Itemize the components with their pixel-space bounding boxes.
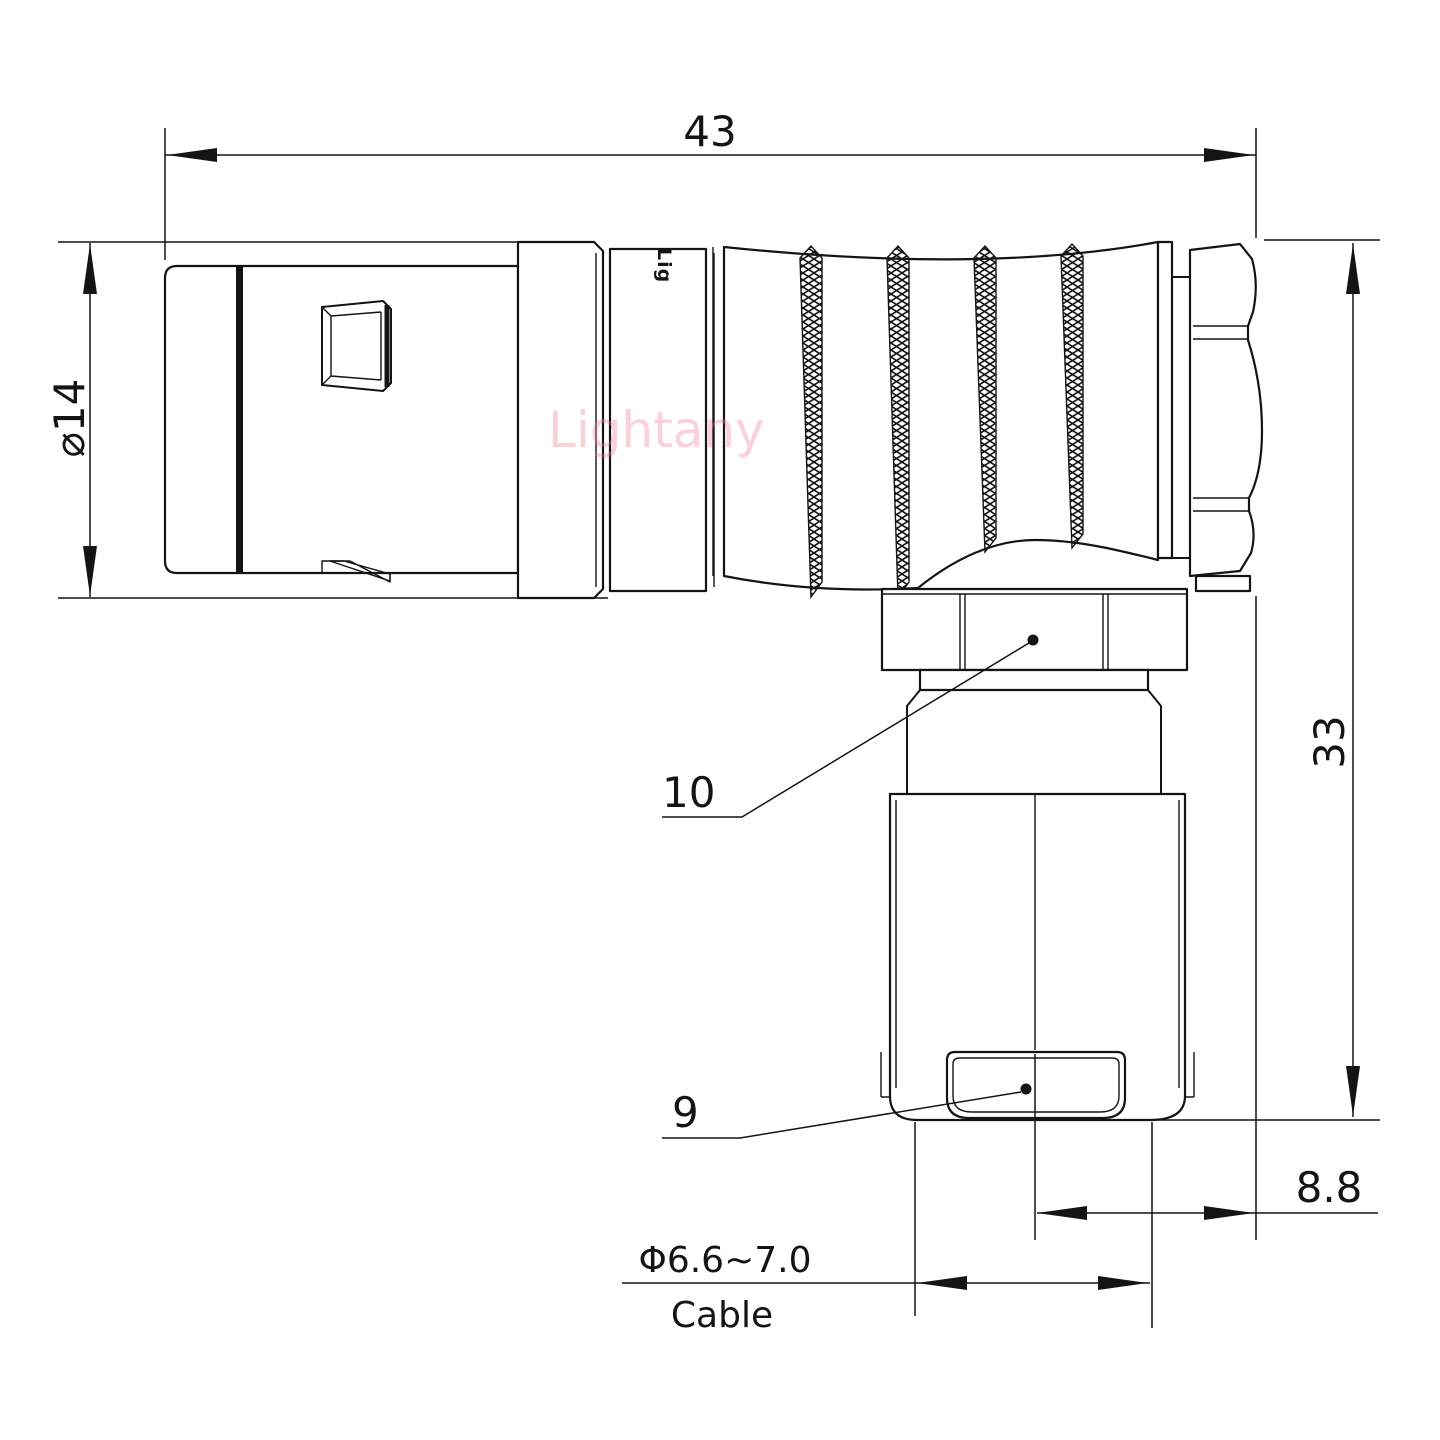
dimension-overall-length: 43 xyxy=(165,107,1256,260)
engraving-text: Lig xyxy=(653,248,675,283)
arrow-right-icon xyxy=(1098,1276,1148,1290)
dim-overall-height-label: 33 xyxy=(1305,715,1354,768)
dim-body-diameter-label: ⌀14 xyxy=(45,379,94,458)
dim-overall-length-label: 43 xyxy=(683,107,736,156)
rear-step xyxy=(1196,576,1250,591)
arrow-right-icon xyxy=(1204,148,1254,162)
arrow-left-icon xyxy=(917,1276,967,1290)
elbow-ring xyxy=(920,670,1148,690)
arrow-down-icon xyxy=(83,546,97,596)
technical-drawing: Lig xyxy=(0,0,1440,1440)
knurled-grip xyxy=(724,242,1158,590)
dimension-cable: Φ6.6~7.0 Cable xyxy=(622,1122,1152,1336)
front-sleeve-band xyxy=(236,266,243,573)
cable-clamp-cap xyxy=(947,1052,1125,1118)
dim-rear-offset-label: 8.8 xyxy=(1296,1163,1363,1212)
arrow-up-icon xyxy=(1346,244,1360,294)
callout-nut-label: 10 xyxy=(662,768,715,817)
callout-dot xyxy=(1028,635,1039,646)
callout-clamp-label: 9 xyxy=(672,1088,699,1137)
dim-cable-word-label: Cable xyxy=(671,1295,773,1336)
arrow-left-icon xyxy=(1037,1206,1087,1220)
taper-ring xyxy=(1158,242,1172,558)
rear-nut xyxy=(1190,244,1262,591)
drawing-canvas: Lig xyxy=(0,0,1440,1440)
hex-nut xyxy=(882,589,1187,670)
watermark-text: Lightany xyxy=(548,401,765,459)
elbow-taper xyxy=(907,690,1161,794)
dim-cable-range-label: Φ6.6~7.0 xyxy=(638,1240,811,1281)
arrow-left-icon xyxy=(167,148,217,162)
arrow-right-icon xyxy=(1204,1206,1254,1220)
arrow-down-icon xyxy=(1346,1066,1360,1116)
front-sleeve xyxy=(165,266,518,573)
callout-dot xyxy=(1021,1084,1032,1095)
connector-body: Lig xyxy=(165,242,1262,1120)
arrow-up-icon xyxy=(83,244,97,294)
